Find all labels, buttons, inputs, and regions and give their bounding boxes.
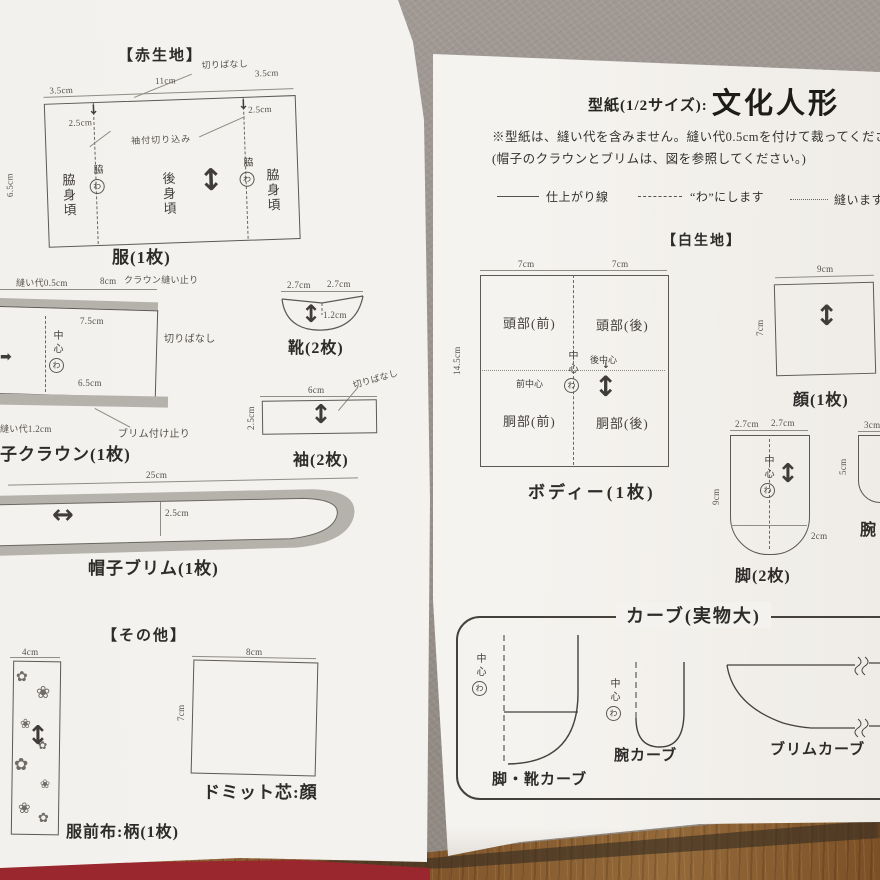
pattern-note-1: ※型紙は、縫い代を含みません。縫い代0.5cmを付けて裁ってください。 <box>492 126 880 145</box>
shoe-width-left: 2.7cm <box>287 280 311 290</box>
body-torso-back-label: 胴部(後) <box>596 413 649 432</box>
leg-width-right: 2.7cm <box>771 418 795 428</box>
dress-side-right-label: 脇身頃 <box>262 168 283 214</box>
circled-wa: わ <box>89 179 105 195</box>
legend-sew-label: 縫います <box>834 191 880 208</box>
pattern-note-2: (帽子のクラウンとブリムは、図を参照してください。) <box>492 148 806 167</box>
domit-outline <box>191 659 319 776</box>
body-width-left: 7cm <box>518 259 534 269</box>
shoe-height: 1.2cm <box>323 310 347 320</box>
crown-stop-label: クラウン縫い止り <box>124 273 198 286</box>
crown-top-width: 8cm <box>100 276 116 286</box>
crown-brim-stop-label: ブリム付け止り <box>118 425 190 440</box>
body-head-front-label: 頭部(前) <box>503 313 556 332</box>
front-cloth-width: 4cm <box>22 647 38 657</box>
section-other: 【その他】 <box>102 624 187 645</box>
arm-curve-caption: 腕カーブ <box>614 744 677 765</box>
body-caption: ボディー(1枚) <box>528 478 656 503</box>
brim-curve <box>725 653 880 743</box>
crown-seam-bottom: 縫い代1.2cm <box>0 422 52 435</box>
front-cloth-caption: 服前布:柄(1枚) <box>66 818 179 842</box>
grain-arrow-icon: ↔ <box>52 502 74 528</box>
body-head-back-label: 頭部(後) <box>596 315 649 334</box>
face-width: 9cm <box>817 264 833 274</box>
brim-height: 2.5cm <box>165 508 189 518</box>
pattern-title: 文化人形 <box>712 80 840 122</box>
arm-outline <box>858 435 880 503</box>
arm-dimension-line <box>858 431 880 432</box>
leg-bottom-height: 2cm <box>811 531 827 541</box>
leg-height: 9cm <box>711 489 721 505</box>
center-chars: 中心 <box>606 678 621 704</box>
brim-width: 25cm <box>146 470 167 480</box>
dress-width-mid: 11cm <box>155 75 176 86</box>
arm-curve-center-mark: 中心 わ <box>606 678 621 721</box>
leg-caption: 脚(2枚) <box>735 562 791 586</box>
circled-wa: わ <box>49 358 64 373</box>
dress-notch-label: 袖付切り込み <box>131 132 191 147</box>
fold-char: 脇 <box>89 164 104 178</box>
crown-center-mark: 中心 わ <box>49 330 64 373</box>
leg-shoe-curve <box>490 633 605 773</box>
crown-seam-band-bottom <box>0 393 168 407</box>
shoe-dimension-line <box>281 291 363 292</box>
grain-arrow-icon: ↕ <box>815 302 838 330</box>
center-chars: 中心 <box>564 350 579 376</box>
arm-caption: 腕 <box>860 516 877 540</box>
leg-shoe-curve-center-mark: 中心 わ <box>472 653 487 696</box>
dress-width-left: 3.5cm <box>49 85 73 96</box>
arm-width: 3cm <box>864 420 880 430</box>
body-center-mark: 中心 わ <box>564 350 579 393</box>
body-front-center-label: 前中心 <box>516 377 543 390</box>
grain-arrow-icon: ↕ <box>27 723 49 749</box>
circled-wa: わ <box>760 483 775 498</box>
section-white-fabric: 【白生地】 <box>662 230 742 250</box>
leg-width-left: 2.7cm <box>735 419 759 429</box>
sleeve-width: 6cm <box>308 385 324 395</box>
dress-fold-mark-left: 脇 わ <box>89 164 105 195</box>
face-dimension-line <box>775 275 874 279</box>
crown-center-fold-line <box>45 316 46 392</box>
crown-width-65: 6.5cm <box>78 378 102 388</box>
dress-notch-right: 2.5cm <box>248 104 272 115</box>
curves-section: カーブ(実物大) 中心 わ 脚・靴カーブ 中心 わ 腕カーブ <box>450 598 880 813</box>
leg-center-mark: 中心 わ <box>760 455 775 498</box>
legend-dotted-line <box>790 199 828 200</box>
sleeve-dimension-line <box>260 396 377 397</box>
brim-curve-caption: ブリムカーブ <box>770 738 865 759</box>
dress-notch-left: 2.5cm <box>68 117 92 128</box>
domit-dimension-line <box>192 656 316 659</box>
front-cloth-pattern-piece: 4cm ✿ ❀ ❀ ✿ ✿ ❀ ❀ ✿ ↕ <box>0 643 75 848</box>
pattern-title-prefix: 型紙(1/2サイズ): <box>588 94 708 115</box>
crown-caption: 帽子クラウン(1枚) <box>0 440 131 465</box>
legend-finish-label: 仕上がり線 <box>546 188 609 205</box>
domit-width: 8cm <box>246 647 262 657</box>
crown-dimension-line <box>0 289 157 290</box>
crown-seam-top: 縫い代0.5cm <box>16 276 68 289</box>
center-chars: 中心 <box>760 455 775 481</box>
arm-height: 5cm <box>838 459 848 475</box>
leg-shoe-curve-caption: 脚・靴カーブ <box>492 768 587 789</box>
body-dimension-line <box>480 270 667 271</box>
fold-arrow-icon: ➡ <box>0 350 12 364</box>
slit-arrow-left-icon: ↓ <box>88 104 99 117</box>
face-caption: 顔(1枚) <box>793 386 849 410</box>
dress-side-left-label: 脇身頃 <box>58 173 79 219</box>
shoe-caption: 靴(2枚) <box>288 334 344 358</box>
dress-width-right: 3.5cm <box>255 68 279 79</box>
dress-fold-mark-right: 脇 わ <box>239 157 255 188</box>
book-photo: 【赤生地】 切りばなし 3.5cm 11cm 3.5cm ↓ ↓ 2.5cm 2… <box>0 0 880 880</box>
legend-fold-label: “わ”にします <box>690 188 764 205</box>
dress-side-height: 6.5cm <box>4 173 15 197</box>
leg-ankle-line <box>731 525 807 526</box>
body-pattern-piece: 7cm 7cm 頭部(前) 頭部(後) 後中心 ↓ 前中心 中心 わ ↕ 胴部(… <box>450 255 685 510</box>
arm-curve <box>622 660 697 755</box>
domit-caption: ドミット芯:顔 <box>203 778 318 803</box>
legend-dashed-line <box>638 196 682 197</box>
sleeve-height: 2.5cm <box>246 406 256 430</box>
crown-cut-edge-label: 切りばなし <box>164 330 216 345</box>
grain-arrow-icon: ↕ <box>777 461 799 487</box>
legend-solid-line <box>497 196 539 197</box>
circled-wa: わ <box>472 681 487 696</box>
face-height: 7cm <box>755 320 765 336</box>
center-chars: 中心 <box>472 653 487 679</box>
domit-height: 7cm <box>176 705 186 721</box>
grain-arrow-icon: ↕ <box>198 166 224 197</box>
shoe-width-right: 2.7cm <box>327 279 351 289</box>
body-width-right: 7cm <box>612 259 628 269</box>
grain-arrow-icon: ↕ <box>594 373 617 401</box>
body-torso-front-label: 胴部(前) <box>503 411 556 430</box>
circled-wa: わ <box>239 172 255 188</box>
dress-cut-edge-label: 切りばなし <box>201 57 248 72</box>
front-cloth-dimension-line <box>10 657 60 658</box>
curves-title: カーブ(実物大) <box>616 602 771 628</box>
dress-caption: 服(1枚) <box>112 243 171 268</box>
dress-back-center-label: 後身頃 <box>158 171 179 217</box>
circled-wa: わ <box>564 378 579 393</box>
brim-height-line <box>160 502 161 536</box>
grain-arrow-icon: ↕ <box>310 402 332 428</box>
circled-wa: わ <box>606 706 621 721</box>
grain-arrow-icon: ↕ <box>301 302 321 326</box>
brim-caption: 帽子ブリム(1枚) <box>88 554 219 579</box>
crown-width-75: 7.5cm <box>80 316 104 326</box>
fold-char: 脇 <box>239 157 254 171</box>
leg-dimension-line <box>730 430 808 431</box>
center-chars: 中心 <box>49 330 64 356</box>
body-height: 14.5cm <box>452 346 462 375</box>
